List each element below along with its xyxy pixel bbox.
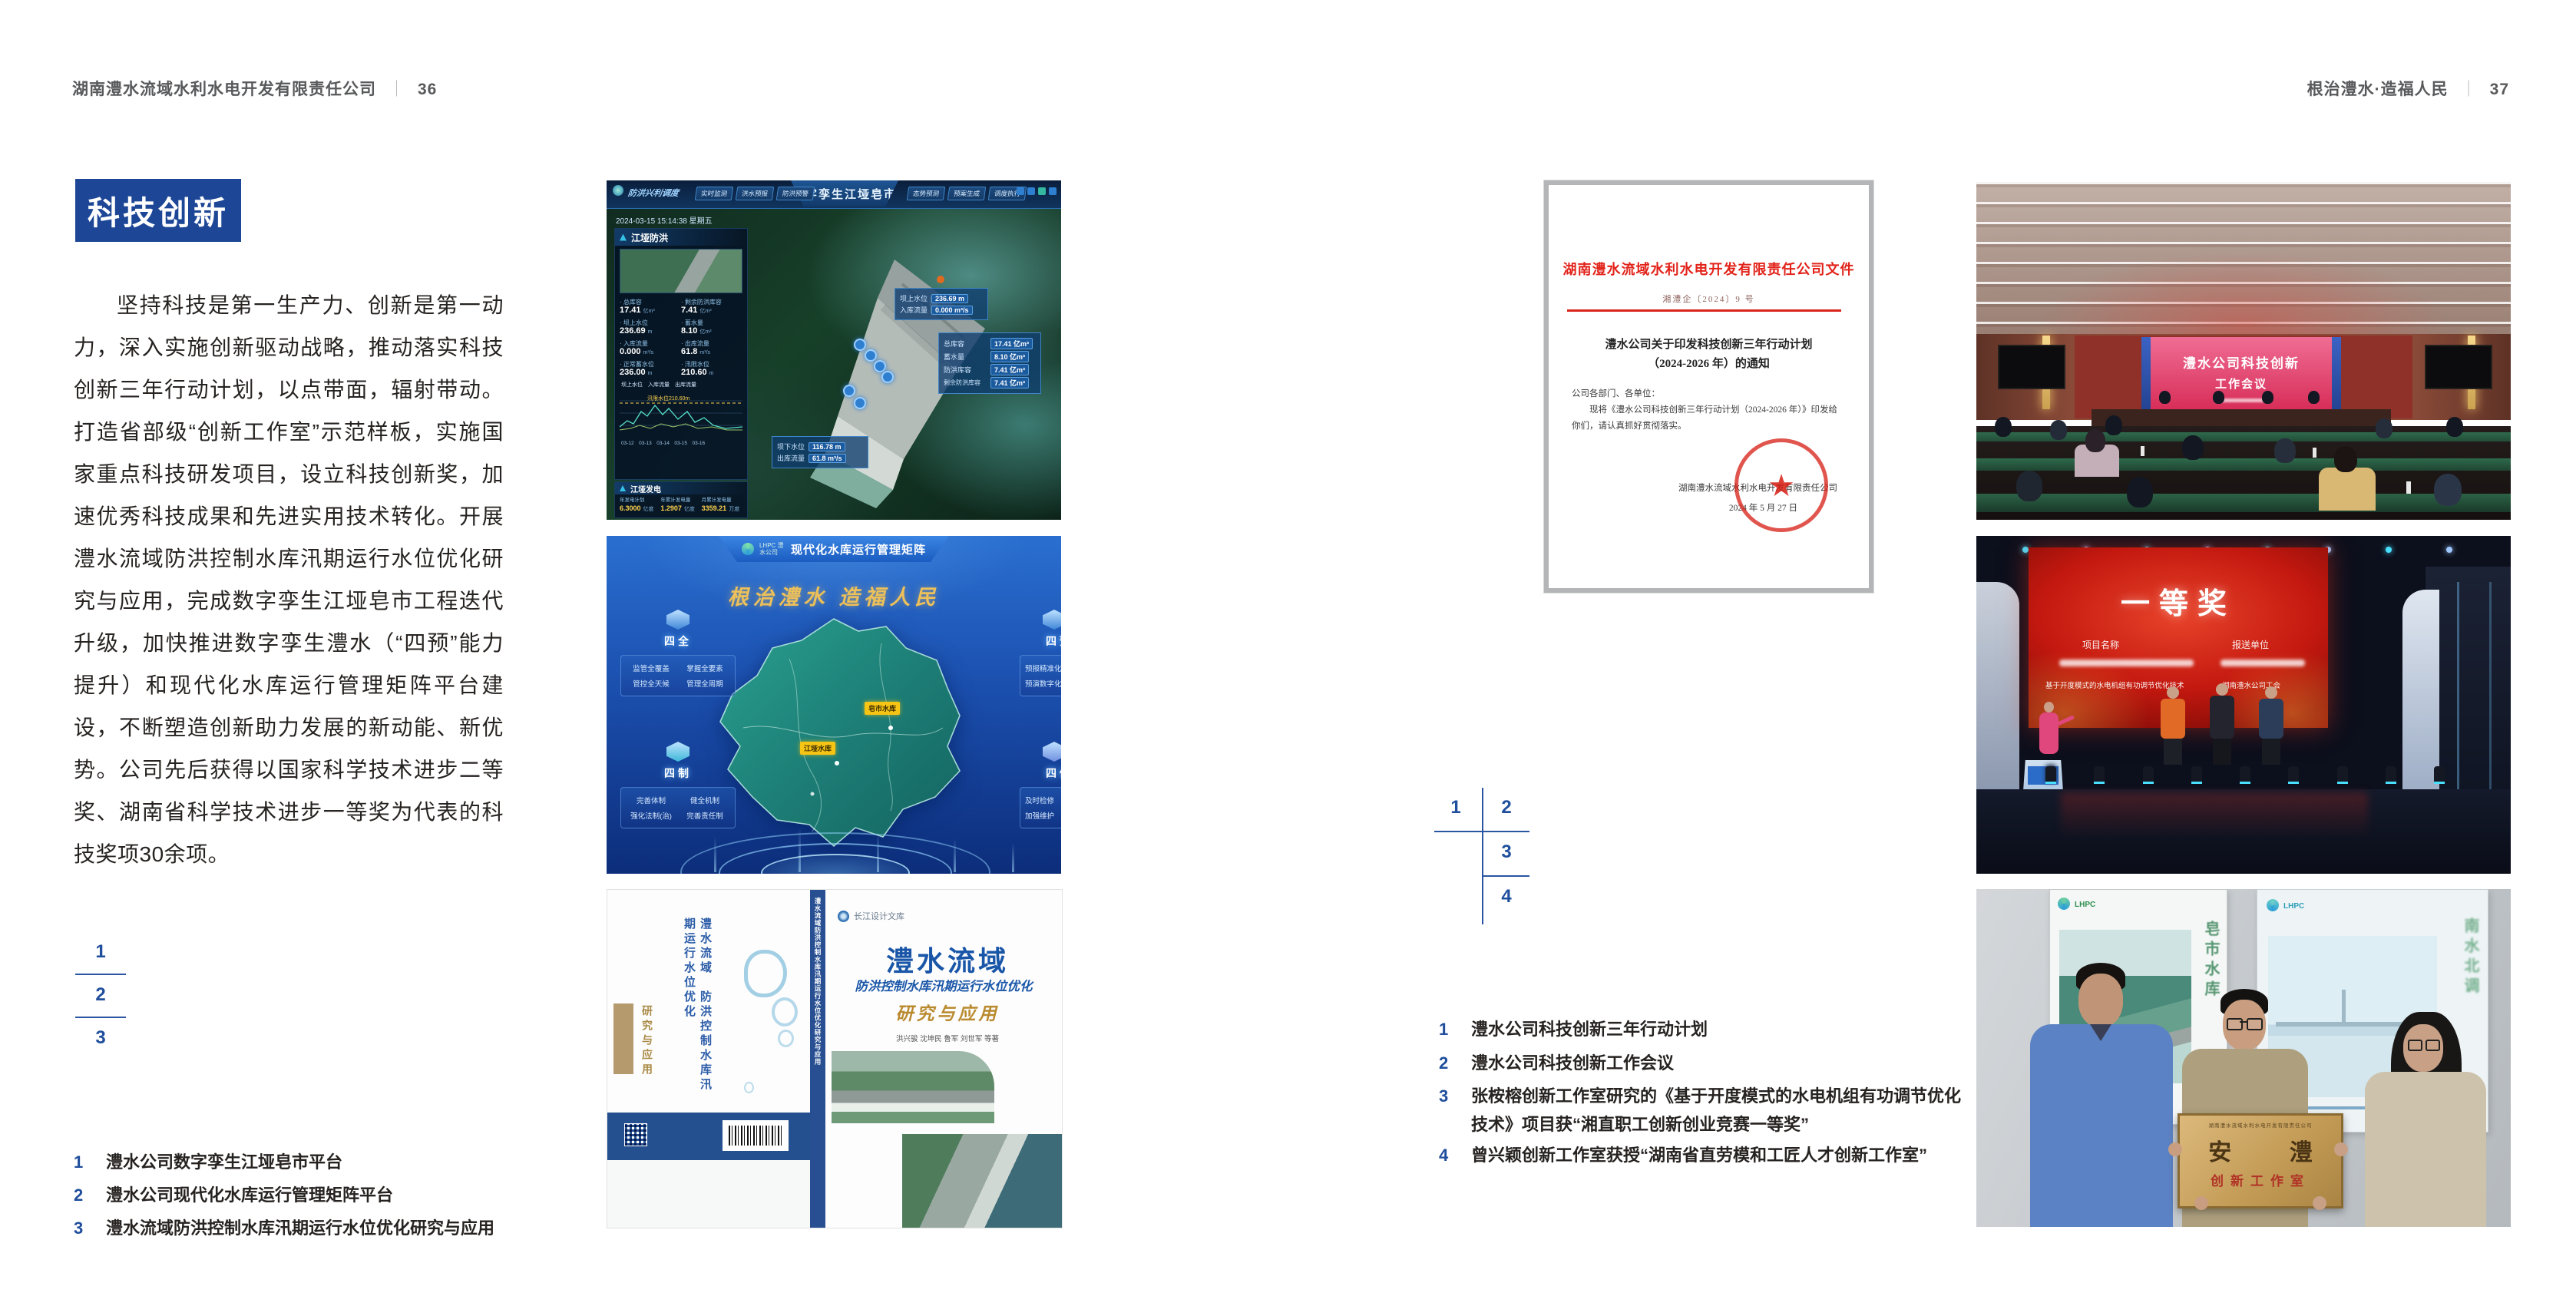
- water-level-chart: 汛限水位210.60m: [620, 390, 742, 435]
- power-stats-grid: 年发电计划6.3000亿度 年累计发电量1.2907亿度 月累计发电量3359.…: [615, 494, 747, 515]
- back-cover-title: 澧水流域 防洪控制水库汛期运行水位优化: [681, 918, 713, 1094]
- page-header-right: 根治澧水·造福人民｜37: [2307, 77, 2509, 100]
- section-title-badge: 科技创新: [75, 179, 241, 242]
- award-title: 一等奖: [2029, 580, 2328, 622]
- monitor-icon: [1043, 610, 1061, 630]
- attendee-yellow-cardigan: [2319, 468, 2376, 511]
- gate-marker[interactable]: [881, 371, 894, 383]
- attendee-silhouette: [2446, 417, 2463, 437]
- attendee-silhouette: [2434, 474, 2462, 506]
- host-head: [2044, 702, 2054, 713]
- nav-button[interactable]: 防洪预警: [776, 187, 815, 200]
- document-red-rule: [1567, 309, 1841, 312]
- caption-number: 2: [74, 1181, 92, 1209]
- screen-reflection: [2061, 792, 2368, 838]
- poster-calligraphy: 南水北调: [2459, 918, 2482, 997]
- photo-award-ceremony: 一等奖 项目名称 报送单位 基于开度模式的水电机组有功调节优化技术 湖南澧水公司…: [1976, 536, 2511, 874]
- book-title: 澧水流域: [838, 939, 1057, 979]
- man-left-face: [2078, 974, 2123, 1027]
- matrix-slogan: 根治澧水 造福人民: [607, 580, 1061, 610]
- gate-marker[interactable]: [854, 339, 866, 351]
- attendee-silhouette: [2182, 435, 2204, 460]
- man-left-blue-polo: [2030, 1024, 2173, 1227]
- tool-icon[interactable]: [1017, 187, 1024, 195]
- caption-number: 3: [74, 1214, 92, 1242]
- index-divider: [1482, 788, 1483, 924]
- speaker-silhouette: [2159, 391, 2171, 404]
- document-red-header: 湖南澧水流域水利水电开发有限责任公司文件: [1549, 259, 1869, 279]
- water-bottle: [2313, 448, 2316, 458]
- award-project-name: 基于开度模式的水电机组有功调节优化技术: [2045, 679, 2211, 690]
- figure-index-2: 2: [1491, 797, 1522, 818]
- attendee-silhouette: [2127, 477, 2153, 508]
- attendee-silhouette: [2085, 429, 2105, 452]
- poster-calligraphy: 皂市水库: [2200, 921, 2222, 1000]
- glasses-left-lens: [2227, 1018, 2243, 1030]
- document-number: 湘澧企〔2024〕9 号: [1549, 293, 1869, 305]
- figure-index-right: 1 2 3 4: [1434, 788, 1529, 924]
- caption-row: 4曾兴颖创新工作室获授“湖南省直劳模和工匠人才创新工作室”: [1439, 1141, 1927, 1169]
- page-header-left: 湖南澧水流域水利水电开发有限责任公司｜36: [72, 77, 437, 100]
- host-pink-dress: [2039, 713, 2058, 754]
- figure-matrix-platform: LHPC 澧水公司 现代化水库运行管理矩阵 根治澧水 造福人民 江垭水库 皂市水…: [607, 536, 1061, 874]
- back-cover-accent-block: [613, 1003, 633, 1074]
- figure-index-left: 1 2 3: [75, 941, 126, 1049]
- rostrum-desk: [2092, 409, 2391, 426]
- figure-index-3: 3: [1491, 841, 1522, 863]
- plaque-title: 创新工作室: [2180, 1170, 2341, 1189]
- attendee-silhouette: [2376, 418, 2392, 438]
- report-spread: 湖南澧水流域水利水电开发有限责任公司｜36 根治澧水·造福人民｜37 科技创新 …: [0, 0, 2576, 1306]
- figure-index-4: 4: [1491, 886, 1522, 908]
- page-number-right: 37: [2490, 81, 2509, 98]
- front-cover-dam-photo: [832, 1051, 994, 1123]
- nav-right-group: 态势预测预案生成调度执行: [908, 186, 1030, 200]
- chart-legend: 坝上水位 入库流量 出库流量: [615, 379, 747, 390]
- lhpc-logo-text: LHPC: [2283, 902, 2304, 911]
- screen-title-line1: 澧水公司科技创新: [2141, 352, 2341, 372]
- light-pillar: [799, 828, 801, 872]
- body-paragraph: 坚持科技是第一生产力、创新是第一动力，深入实施创新驱动战略，推动落实科技创新三年…: [74, 284, 504, 875]
- moving-head-lights: [2045, 766, 2445, 784]
- panel-icon: [620, 485, 626, 491]
- page-number-left: 36: [418, 81, 437, 98]
- ceiling-lights: [1976, 182, 2511, 334]
- plaque-name: 安 澧: [2180, 1133, 2341, 1167]
- power-data-panel: 江垭发电 年发电计划6.3000亿度 年累计发电量1.2907亿度 月累计发电量…: [614, 481, 748, 518]
- hand: [2168, 1142, 2182, 1156]
- downstream-callout: 坝下水位116.78 m 出库流量61.8 m³/s: [772, 436, 868, 468]
- matrix-card-sixiu: 四修 及时检修加强维护: [1020, 742, 1061, 828]
- matrix-card-siquan: 四全 监管全覆盖掌握全要素 管控全天候管理全周期: [620, 610, 736, 696]
- award-row-blur: [2059, 660, 2194, 666]
- flood-stats-grid: · 总库容17.41亿m³ · 剩余防洪库容7.41亿m³ · 坝上水位236.…: [615, 296, 747, 379]
- figure-official-document: 湖南澧水流域水利水电开发有限责任公司文件 湘澧企〔2024〕9 号 澧水公司关于…: [1544, 180, 1873, 593]
- caption-text: 澧水公司现代化水库运行管理矩阵平台: [106, 1181, 393, 1209]
- caption-row: 1澧水公司科技创新三年行动计划: [1439, 1015, 1708, 1043]
- attendee-silhouette: [2334, 446, 2357, 472]
- figure-digital-twin-dashboard: 数字孪生江垭皂市 防洪兴利调度 实时监测洪水预报防洪预警 态势预测预案生成调度执…: [607, 180, 1061, 520]
- tool-icon[interactable]: [1038, 187, 1046, 195]
- reservoir-label[interactable]: 皂市水库: [865, 702, 900, 715]
- figure-index-3: 3: [75, 1018, 126, 1049]
- caption-row: 3张桉榕创新工作室研究的《基于开度模式的水电机组有功调节优化技术》项目获“湘直职…: [1439, 1082, 1969, 1139]
- winner-navy-jacket: [2259, 699, 2283, 739]
- dashboard-timestamp: 2024-03-15 15:14:38 星期五: [616, 214, 713, 226]
- stage-side-panel-right: [2402, 590, 2439, 820]
- lhpc-logo-icon: [2267, 899, 2279, 911]
- panel-icon: [620, 234, 627, 241]
- nav-button[interactable]: 洪水预报: [736, 187, 775, 200]
- header-separator: ｜: [389, 81, 405, 98]
- book-subtitle: 防洪控制水库汛期运行水位优化: [828, 976, 1059, 994]
- glasses-right-lens: [2247, 1018, 2263, 1030]
- attendee-silhouette: [2016, 471, 2042, 501]
- glasses-bridge: [2240, 1021, 2247, 1023]
- panel-title: 江垭防洪: [631, 231, 668, 244]
- hand: [2334, 1142, 2348, 1156]
- screen-title-line2: 工作会议: [2141, 375, 2341, 392]
- wall-tv-screen: [2425, 345, 2492, 389]
- nav-left-group: 实时监测洪水预报防洪预警: [696, 186, 818, 200]
- caption-text: 澧水公司科技创新工作会议: [1471, 1049, 1674, 1077]
- building-icon: [666, 742, 689, 762]
- lhpc-logo-icon: [742, 543, 754, 555]
- light-pillar: [954, 838, 956, 872]
- hand: [2194, 1196, 2208, 1210]
- barcode: [723, 1120, 789, 1151]
- award-row-blur: [2221, 660, 2305, 666]
- caption-text: 曾兴颖创新工作室获授“湖南省直劳模和工匠人才创新工作室”: [1471, 1141, 1927, 1169]
- light-pillar: [877, 832, 879, 872]
- award-col-unit: 报送单位: [2232, 638, 2269, 651]
- attendee-silhouette: [2274, 438, 2296, 463]
- lhpc-logo-text: LHPC: [2075, 901, 2095, 909]
- upstream-callout: 坝上水位236.69 m 入库流量0.000 m³/s: [894, 288, 988, 320]
- light-pillar: [1012, 843, 1014, 872]
- caption-text: 澧水流域防洪控制水库汛期运行水位优化研究与应用: [106, 1214, 494, 1242]
- caption-row: 3澧水流域防洪控制水库汛期运行水位优化研究与应用: [74, 1214, 494, 1242]
- flood-data-panel: 江垭防洪 · 总库容17.41亿m³ · 剩余防洪库容7.41亿m³ · 坝上水…: [614, 228, 748, 480]
- module-title: 防洪兴利调度: [627, 187, 680, 199]
- back-cover-footer: [607, 1160, 825, 1228]
- caption-text: 张桉榕创新工作室研究的《基于开度模式的水电机组有功调节优化技术》项目获“湘直职工…: [1471, 1082, 1963, 1139]
- tool-icon[interactable]: [1049, 187, 1057, 195]
- front-cover-dam-photo2: [902, 1134, 1062, 1228]
- winner-head: [2167, 686, 2179, 699]
- matrix-title: 现代化水库运行管理矩阵: [791, 541, 926, 557]
- light-pillar: [714, 837, 716, 872]
- book-subtitle-tail: 研究与应用: [838, 999, 1057, 1025]
- company-name: 湖南澧水流域水利水电开发有限责任公司: [72, 81, 376, 98]
- dashboard-logo-icon: [613, 185, 623, 196]
- matrix-card-siyu: 四预 预报精准化预演数字化: [1020, 610, 1061, 696]
- gate-marker[interactable]: [874, 360, 886, 372]
- matrix-card-sizhi: 四制 完善体制健全机制 强化法制(治)完善责任制: [620, 742, 736, 828]
- book-authors: 洪兴骏 沈坤民 鲁军 刘世军 等著: [838, 1033, 1057, 1043]
- chart-axis-dates: 03-12 03-13 03-14 03-15 03-16: [615, 438, 747, 446]
- winner-legs: [2213, 739, 2231, 765]
- table-row-green: [1976, 494, 2511, 512]
- spine-title: 澧水流域防洪控制水库汛期运行水位优化研究与应用: [813, 898, 822, 1128]
- winner-orange-jacket: [2161, 699, 2185, 739]
- water-bottle: [2141, 446, 2144, 456]
- water-droplet-graphic: [744, 1082, 754, 1093]
- matrix-header: LHPC 澧水公司 现代化水库运行管理矩阵: [719, 536, 949, 562]
- document-title: 澧水公司关于印发科技创新三年行动计划 （2024-2026 年）的通知: [1549, 336, 1869, 374]
- caption-row: 1澧水公司数字孪生江垭皂市平台: [74, 1148, 342, 1176]
- figure-book-cover: 澧水流域 防洪控制水库汛期运行水位优化 研究与应用 澧水流域防洪控制水库汛期运行…: [607, 889, 1063, 1228]
- photo-plaque-presentation: LHPC 皂市水库 LHPC 南水北调: [1976, 889, 2511, 1227]
- glasses-right-lens: [2426, 1040, 2440, 1051]
- speaker-silhouette: [2262, 391, 2273, 404]
- watershed-map: [697, 613, 971, 858]
- caption-text: 澧水公司科技创新三年行动计划: [1471, 1015, 1708, 1043]
- header-separator: ｜: [2461, 81, 2478, 98]
- attendee-silhouette: [2105, 415, 2122, 435]
- nav-button[interactable]: 态势预测: [907, 187, 946, 200]
- index-divider: [1434, 831, 1529, 832]
- wrench-icon: [1043, 742, 1061, 762]
- winner-dark-suit: [2210, 696, 2234, 739]
- water-bottle: [2406, 481, 2411, 494]
- publisher-logo-icon: [838, 911, 849, 922]
- caption-number: 1: [74, 1148, 92, 1176]
- wall-tv-screen: [1998, 345, 2065, 389]
- figure-index-2: 2: [75, 975, 126, 1017]
- cube-icon: [666, 610, 689, 630]
- winner-legs: [2164, 739, 2182, 765]
- reservoir-label[interactable]: 江垭水库: [800, 742, 835, 755]
- toolbar-icons: [1017, 187, 1057, 195]
- speaker-silhouette: [2213, 391, 2224, 404]
- figure-index-1: 1: [1440, 797, 1471, 818]
- series-name: 长江设计文库: [854, 910, 904, 922]
- table-row-green: [1976, 458, 2511, 471]
- caption-number: 3: [1439, 1082, 1457, 1139]
- woman-beige-top: [2365, 1072, 2486, 1227]
- hand: [2313, 1196, 2326, 1210]
- svg-text:汛限水位210.60m: 汛限水位210.60m: [647, 395, 689, 402]
- caption-row: 2澧水公司现代化水库运行管理矩阵平台: [74, 1181, 393, 1209]
- caption-number: 4: [1439, 1141, 1457, 1169]
- back-cover-subtitle: 研究与应用: [640, 1005, 655, 1078]
- photo-innovation-meeting: 澧水公司科技创新 工作会议: [1976, 182, 2511, 520]
- book-spine: 澧水流域防洪控制水库汛期运行水位优化研究与应用: [810, 890, 825, 1228]
- lhpc-logo-text: LHPC 澧水公司: [759, 542, 785, 556]
- award-col-project: 项目名称: [2082, 638, 2119, 651]
- caption-number: 2: [1439, 1049, 1457, 1077]
- figure-index-1: 1: [75, 941, 126, 974]
- series-logo: 长江设计文库: [838, 910, 904, 922]
- document-body: 公司各部门、各单位： 现将《澧水公司科技创新三年行动计划（2024-2026 年…: [1572, 386, 1837, 435]
- caption-text: 澧水公司数字孪生江垭皂市平台: [106, 1148, 342, 1176]
- gate-marker[interactable]: [854, 397, 866, 409]
- lhpc-logo-icon: [2058, 898, 2070, 910]
- glasses-left-lens: [2408, 1040, 2422, 1051]
- winner-head: [2216, 683, 2228, 696]
- water-droplet-graphic: [778, 1030, 794, 1047]
- nav-button[interactable]: 实时监测: [695, 187, 734, 200]
- tool-icon[interactable]: [1027, 187, 1035, 195]
- winner-head: [2265, 686, 2277, 699]
- speaker-silhouette: [2308, 391, 2320, 404]
- official-seal: ★: [1734, 438, 1828, 532]
- qr-code: [621, 1120, 650, 1149]
- caption-number: 1: [1439, 1015, 1457, 1043]
- gate-marker[interactable]: [865, 349, 877, 362]
- index-divider: [1482, 875, 1529, 877]
- water-droplet-graphic: [772, 997, 798, 1027]
- dam-thumbnail: [620, 249, 742, 293]
- winner-legs: [2262, 739, 2280, 765]
- caption-row: 2澧水公司科技创新工作会议: [1439, 1049, 1674, 1077]
- attendee-silhouette: [1995, 417, 2012, 437]
- bridge-pylon: [2342, 990, 2346, 1027]
- plaque-org-line: 湖南澧水流域水利水电开发有限责任公司: [2180, 1121, 2341, 1129]
- innovation-workshop-plaque: 湖南澧水流域水利水电开发有限责任公司 安 澧 创新工作室: [2178, 1113, 2343, 1208]
- slogan-title: 根治澧水·造福人民: [2307, 81, 2449, 98]
- nav-button[interactable]: 预案生成: [947, 187, 987, 200]
- panel-title: 江垭发电: [630, 483, 661, 494]
- reservoir-info-callout: 总库容17.41 亿m³ 蓄水量8.10 亿m³ 防洪库容7.41 亿m³ 剩余…: [938, 332, 1041, 394]
- water-droplet-graphic: [744, 950, 787, 997]
- attendee-silhouette: [2050, 420, 2067, 440]
- gate-marker[interactable]: [843, 385, 855, 397]
